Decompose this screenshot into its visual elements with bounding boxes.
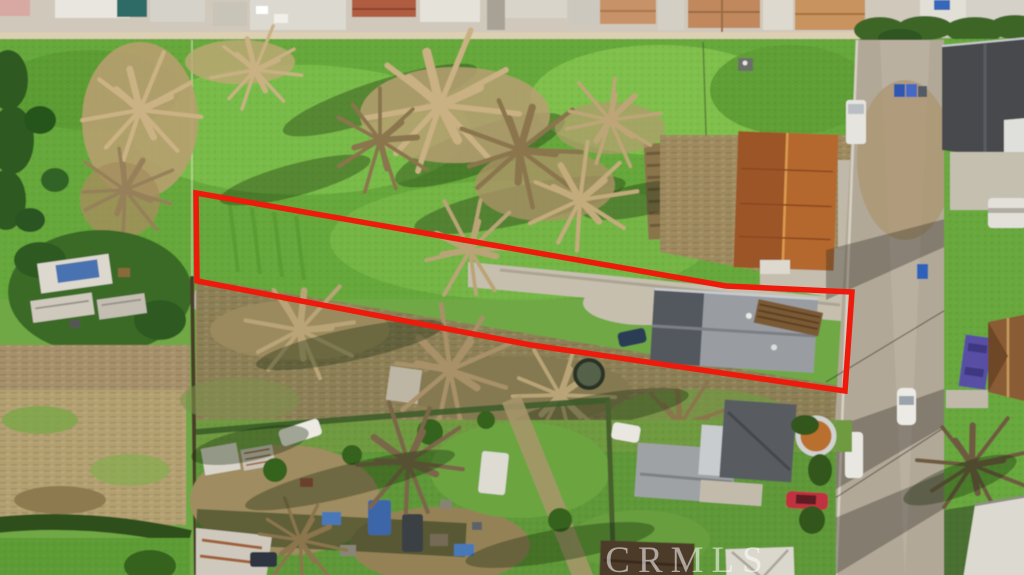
car: [934, 0, 950, 10]
trash-bin: [917, 264, 928, 279]
aerial-photo: CRMLS: [0, 0, 1024, 575]
pool: [117, 0, 147, 17]
subject-house: [650, 289, 818, 373]
terrain: [0, 0, 1024, 575]
white-car: [897, 388, 916, 425]
block-wall: [0, 32, 864, 39]
trampoline: [575, 360, 603, 388]
trailer: [478, 451, 509, 496]
watermark: CRMLS: [605, 540, 770, 575]
roof: [0, 0, 30, 16]
left-strip: [0, 42, 214, 575]
garden-compound: [8, 230, 192, 354]
porch-roof: [760, 260, 790, 274]
roof: [688, 0, 760, 28]
